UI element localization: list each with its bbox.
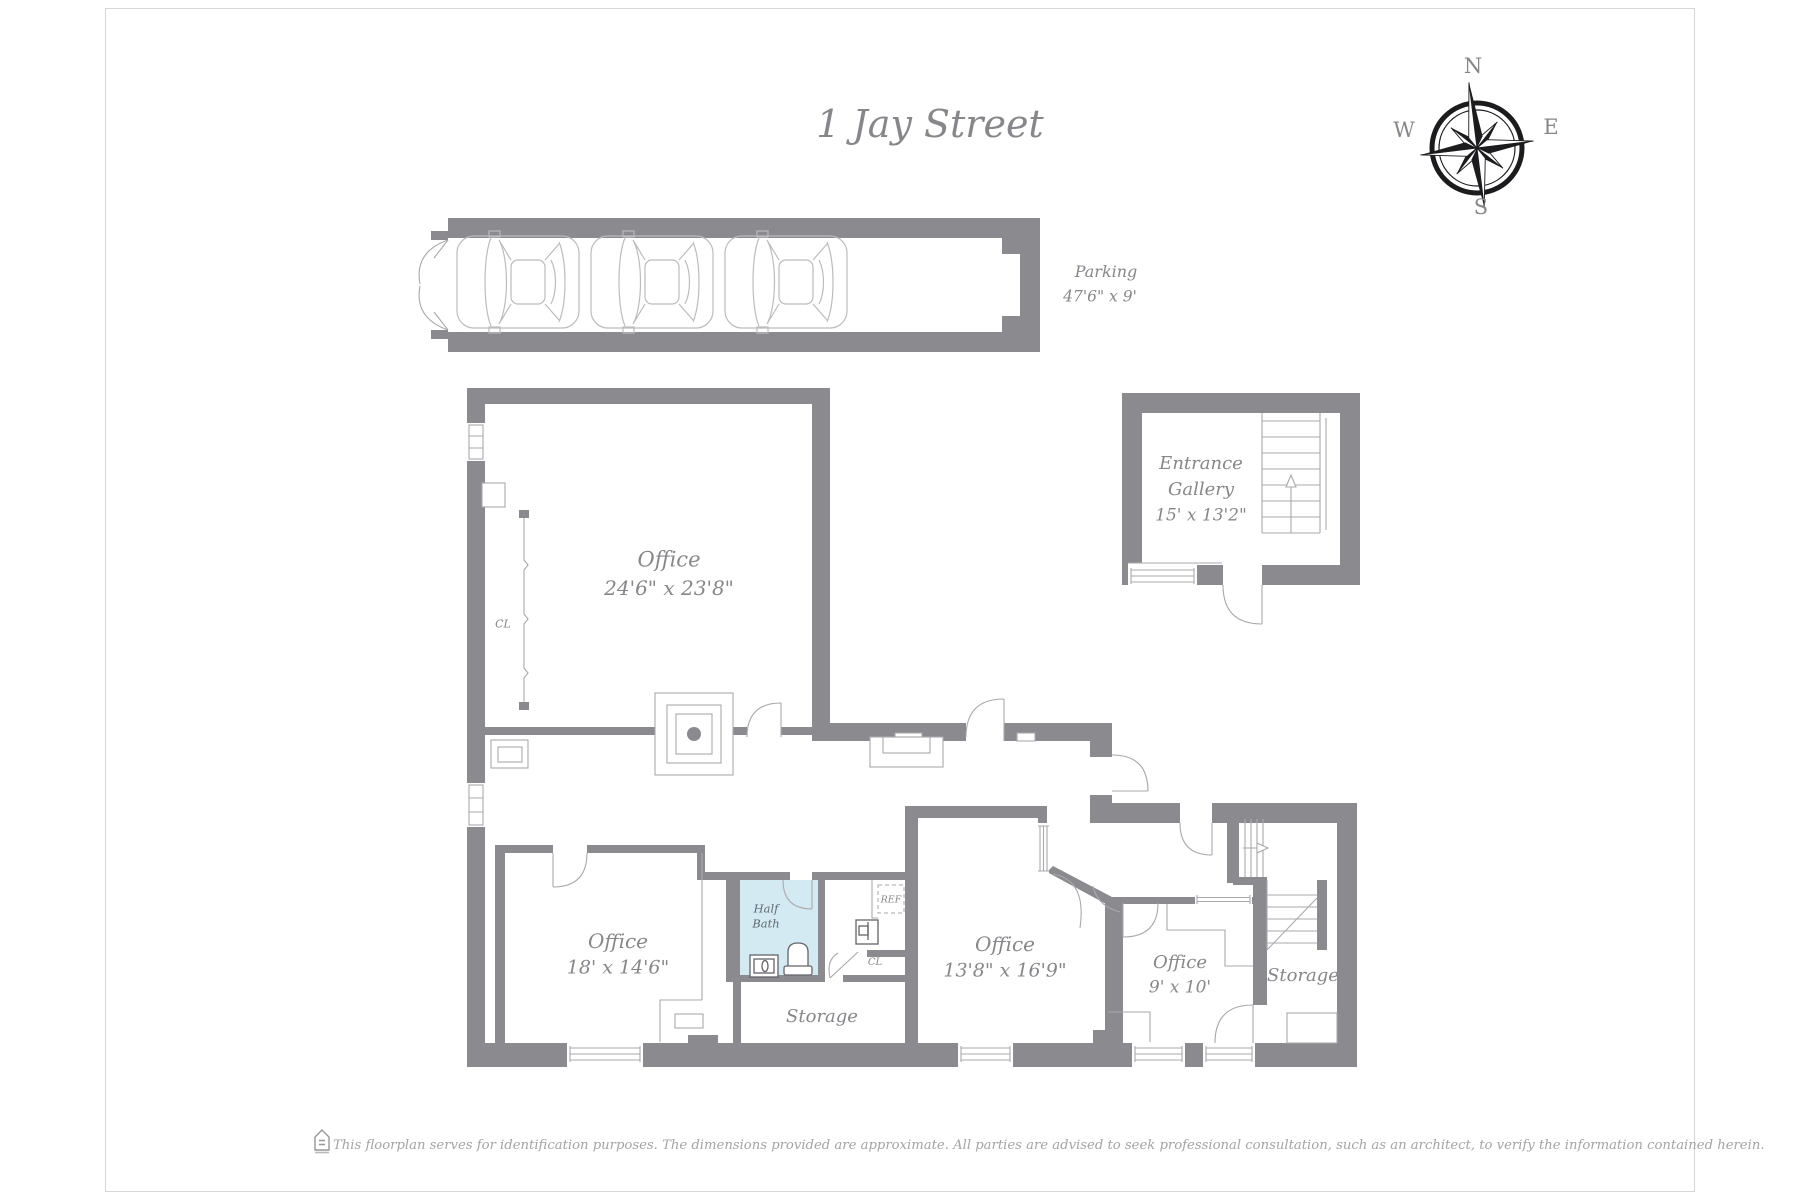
room-dims-office-mid: 13'8" x 16'9" <box>943 962 1066 981</box>
room-label-half-bath-2: Bath <box>752 918 779 930</box>
parking-garage <box>419 218 1040 352</box>
closet-door-icon <box>829 952 858 978</box>
room-label-half-bath-1: Half <box>754 903 779 915</box>
room-dims-entrance-gallery: 15' x 13'2" <box>1155 508 1247 525</box>
compass-rose-icon <box>1412 76 1540 214</box>
basin-icon <box>856 920 878 944</box>
room-dims-office-large: 24'6" x 23'8" <box>604 578 734 598</box>
stairs-up-icon <box>1262 413 1326 533</box>
compass-west-label: W <box>1393 118 1415 142</box>
room-label-entrance-gallery-1: Entrance <box>1159 455 1243 473</box>
room-label-parking: Parking <box>1075 264 1138 280</box>
room-dims-office-small: 9' x 10' <box>1149 980 1211 997</box>
double-door-icon <box>419 240 448 330</box>
room-label-entrance-gallery-2: Gallery <box>1168 481 1234 499</box>
closet-label-hall: CL <box>868 958 882 968</box>
compass-east-label: E <box>1543 115 1558 139</box>
chimney-niche <box>870 737 943 767</box>
room-label-office-left: Office <box>588 931 648 951</box>
sink-icon <box>750 955 778 977</box>
room-dims-office-left: 18' x 14'6" <box>567 959 669 978</box>
closet-label-large-office: CL <box>495 619 511 630</box>
equal-housing-icon <box>315 1130 329 1153</box>
car-icon <box>457 231 579 333</box>
floorplan-drawing <box>0 0 1800 1200</box>
room-dims-parking: 47'6" x 9' <box>1063 289 1137 305</box>
room-label-storage-right: Storage <box>1267 967 1339 985</box>
compass-north-label: N <box>1464 54 1482 78</box>
car-icon <box>591 231 713 333</box>
room-label-storage-mid: Storage <box>786 1008 858 1026</box>
car-icon <box>725 231 847 333</box>
disclaimer-text: This floorplan serves for identification… <box>333 1138 1765 1153</box>
refrigerator-label: REF <box>881 895 902 905</box>
closet-bifold-door <box>519 510 529 710</box>
room-label-office-mid: Office <box>975 934 1035 954</box>
floorplan-page: 1 Jay Street N E S W Parking 47'6" x 9' … <box>0 0 1800 1200</box>
compass-south-label: S <box>1474 195 1488 219</box>
room-label-office-small: Office <box>1153 954 1207 972</box>
toilet-icon <box>784 943 812 975</box>
fireplace <box>655 693 733 775</box>
page-title: 1 Jay Street <box>816 105 1043 143</box>
room-label-office-large: Office <box>638 550 701 571</box>
